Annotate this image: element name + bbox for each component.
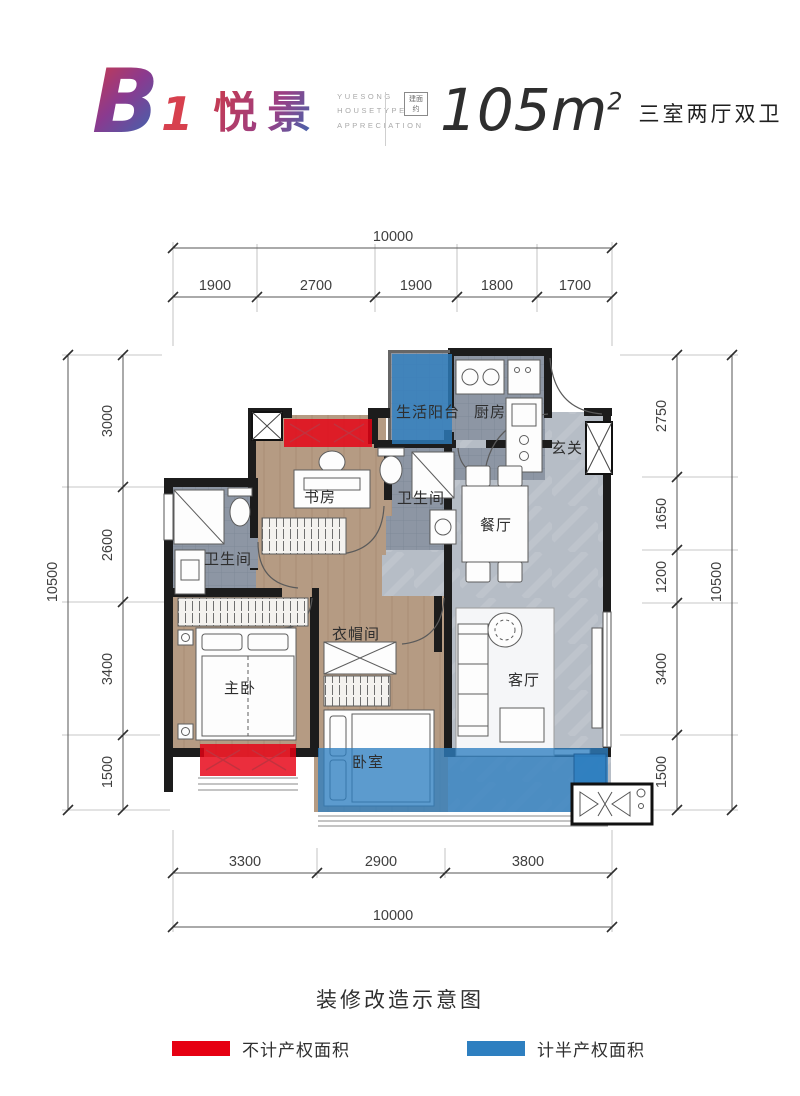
room-label-entry: 玄关 — [551, 440, 583, 457]
closet-furniture — [324, 642, 396, 674]
entry-door-arc — [550, 358, 602, 414]
dim-left-total: 10500 — [45, 562, 61, 602]
dim-right-total: 10500 — [709, 562, 725, 602]
room-label-master: 主卧 — [224, 680, 256, 697]
room-label-dining: 餐厅 — [480, 517, 512, 534]
legend-label-blue: 计半产权面积 — [537, 1036, 645, 1061]
room-label-bath-upper: 卫生间 — [397, 490, 445, 507]
dim-right-4: 3400 — [654, 653, 670, 685]
dim-bottom-3: 3800 — [512, 854, 544, 870]
legend-swatch-1 — [467, 1041, 525, 1056]
dim-top-4: 1800 — [481, 278, 513, 294]
plan-caption: 装修改造示意图 — [0, 984, 800, 1014]
dim-left-2: 2600 — [100, 529, 116, 561]
dim-left-1: 3000 — [100, 405, 116, 437]
dim-top-total: 10000 — [373, 229, 413, 245]
room-label-living: 客厅 — [508, 672, 540, 689]
overlay-master-bay-red — [200, 744, 296, 776]
dim-bottom-2: 2900 — [365, 854, 397, 870]
overlay-study-bay-red — [284, 419, 372, 447]
window-bath-left — [164, 494, 173, 540]
room-label-bedroom: 卧室 — [352, 754, 384, 771]
room-label-closet: 衣帽间 — [332, 626, 380, 643]
ac-platform — [572, 784, 652, 824]
dim-left-4: 1500 — [100, 756, 116, 788]
legend-label-red: 不计产权面积 — [242, 1036, 350, 1061]
room-label-kitchen: 厨房 — [474, 404, 506, 421]
room-label-study: 书房 — [304, 489, 336, 506]
dim-top-3: 1900 — [400, 278, 432, 294]
dim-bottom-total: 10000 — [373, 908, 413, 924]
legend-swatch-0 — [172, 1041, 230, 1056]
dim-right-2: 1650 — [654, 498, 670, 530]
dim-right-3: 1200 — [654, 561, 670, 593]
dim-top-1: 1900 — [199, 278, 231, 294]
legend-item-red: 不计产权面积 — [172, 1036, 350, 1061]
dim-right-5: 1500 — [654, 756, 670, 788]
dim-top-2: 2700 — [300, 278, 332, 294]
room-label-balcony: 生活阳台 — [396, 404, 460, 421]
floor-plan: 生活阳台 厨房 玄关 卫生间 卫生间 餐厅 书房 主卧 衣帽间 客厅 卧室 10… — [0, 0, 800, 1096]
legend-item-blue: 计半产权面积 — [467, 1036, 645, 1061]
dim-left-3: 3400 — [100, 653, 116, 685]
dim-top-5: 1700 — [559, 278, 591, 294]
room-label-bath-left: 卫生间 — [204, 551, 252, 568]
dim-right-1: 2750 — [654, 400, 670, 432]
dim-bottom-1: 3300 — [229, 854, 261, 870]
overlay-balcony-blue — [392, 354, 452, 444]
master-furniture — [178, 598, 308, 740]
floor-hallway — [382, 548, 448, 598]
